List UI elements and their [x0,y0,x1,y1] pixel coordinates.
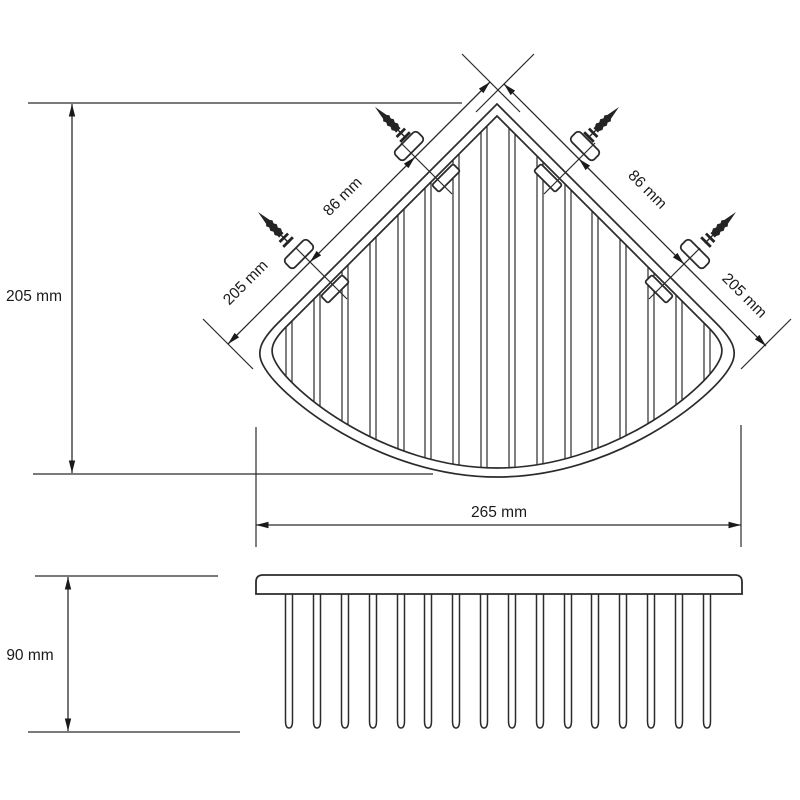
prong [425,591,432,728]
dim-label-right-screw-spacing: 86 mm [624,167,670,213]
side-view [256,575,742,728]
extension-tick [462,54,520,112]
prong [537,591,544,728]
extension-tick [649,248,700,299]
screw-icon [700,207,741,248]
prong [453,591,460,728]
prong [398,591,405,728]
wire [481,60,487,480]
right-rail-dimensions: 86 mm 205 mm [476,54,791,369]
prong [704,591,711,728]
prong [676,591,683,728]
basket-wires [286,60,710,480]
wire [286,60,292,480]
dim-label-left-rail-length: 205 mm [220,257,272,309]
dim-label-front-width: 265 mm [471,504,527,521]
prong [370,591,377,728]
left-rail-dimensions: 86 mm 205 mm [203,54,520,369]
dim-line [415,82,490,157]
wire [370,60,376,480]
side-rail-bar [256,575,742,594]
wire [453,60,459,480]
dim-label-height: 90 mm [6,647,53,664]
screw-icon [583,102,624,143]
extension-tick [476,54,534,112]
wire [425,60,431,480]
wire [592,60,598,480]
extension-tick [544,143,595,194]
prong [648,591,655,728]
top-view [253,60,741,480]
technical-drawing-corner-basket: 86 mm 205 mm 86 mm 205 mm 205 mm 265 mm [0,0,800,800]
wire [398,60,404,480]
wire [565,60,571,480]
width-dimension: 265 mm [256,425,741,547]
dim-label-depth: 205 mm [6,288,62,305]
height-dimension: 90 mm [6,576,240,732]
prong [620,591,627,728]
dim-label-right-rail-length: 205 mm [718,270,770,322]
prong [565,591,572,728]
extension-tick [741,319,791,369]
prong [509,591,516,728]
wire [509,60,515,480]
prong [481,591,488,728]
side-prongs [286,591,711,728]
prong [314,591,321,728]
wire [620,60,626,480]
prong [286,591,293,728]
drawing-svg: 86 mm 205 mm 86 mm 205 mm 205 mm 265 mm [0,0,800,800]
prong [342,591,349,728]
screw-icon [253,207,294,248]
screw-icon [370,102,411,143]
wire [704,60,710,480]
prong [592,591,599,728]
